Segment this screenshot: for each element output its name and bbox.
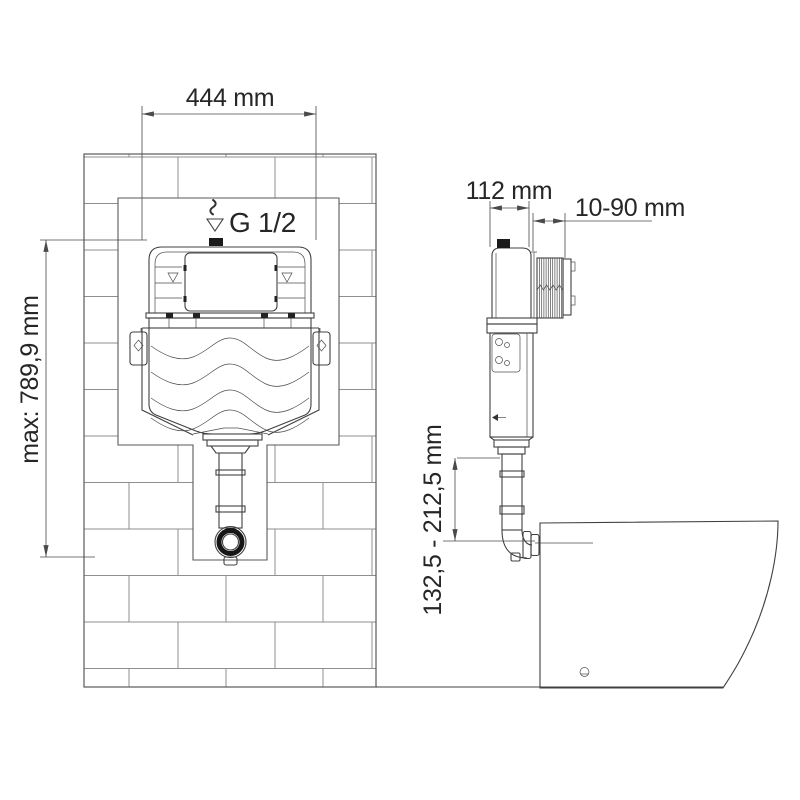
dimension-wall-adjust: 10-90 mm	[533, 194, 685, 258]
installation-diagram: G 1/2	[0, 0, 800, 800]
fixing-hole	[580, 668, 589, 677]
max-height-label: max: 789,9 mm	[16, 295, 44, 463]
side-view: 112 mm 10-90 mm 132,5 - 212,5 mm	[376, 177, 778, 688]
frame-width-label: 444 mm	[186, 84, 275, 112]
drain-arrow-icon	[492, 414, 498, 421]
inlet-thread-label: G 1/2	[229, 207, 296, 238]
bellows-end-plate	[563, 259, 571, 315]
front-view: G 1/2	[16, 84, 376, 687]
dimension-pipe-range: 132,5 - 212,5 mm	[419, 424, 535, 615]
flush-pipe-range-label: 132,5 - 212,5 mm	[419, 424, 447, 615]
wall-depth-range-label: 10-90 mm	[575, 194, 685, 222]
dimension-depth: 112 mm	[466, 177, 553, 247]
concealed-cistern-drawing: G 1/2	[0, 0, 800, 800]
toilet-bowl	[535, 521, 778, 688]
control-panel	[492, 334, 520, 372]
cistern-side	[487, 239, 537, 454]
dimension-width: 444 mm	[142, 84, 316, 114]
bellows-sleeve	[537, 258, 575, 318]
flush-pipe-side	[500, 454, 539, 561]
inlet-cap	[497, 239, 510, 248]
water-inlet-connection	[209, 238, 223, 246]
cistern-depth-label: 112 mm	[466, 177, 553, 205]
